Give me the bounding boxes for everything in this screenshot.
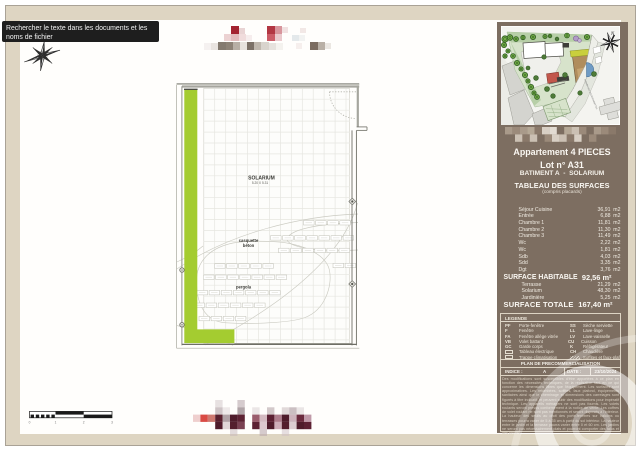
- svg-text:pergola: pergola: [236, 284, 252, 289]
- svg-text:0: 0: [29, 421, 31, 425]
- svg-text:5.20 X 5.31: 5.20 X 5.31: [252, 181, 269, 185]
- svg-text:1: 1: [55, 421, 57, 425]
- svg-text:2: 2: [83, 421, 85, 425]
- svg-text:béton: béton: [243, 243, 255, 248]
- svg-text:3: 3: [111, 421, 113, 425]
